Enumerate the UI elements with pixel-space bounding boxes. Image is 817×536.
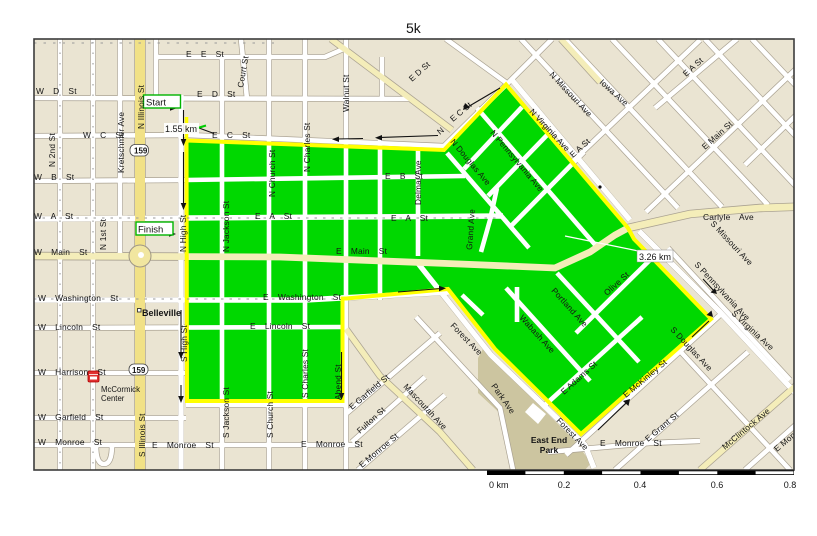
svg-text:W Main St: W Main St bbox=[34, 247, 88, 257]
svg-text:0 km: 0 km bbox=[489, 480, 509, 490]
svg-text:Start: Start bbox=[146, 98, 166, 109]
svg-text:McCormick: McCormick bbox=[101, 385, 140, 394]
svg-text:Abend St: Abend St bbox=[333, 364, 343, 400]
svg-text:Delmar Ave: Delmar Ave bbox=[413, 160, 423, 205]
svg-text:E A St: E A St bbox=[255, 211, 292, 221]
svg-text:1.55 km: 1.55 km bbox=[165, 124, 197, 134]
svg-text:W B St: W B St bbox=[34, 172, 75, 182]
svg-text:W Washington St: W Washington St bbox=[38, 293, 119, 303]
svg-text:159: 159 bbox=[132, 366, 146, 375]
svg-text:W A St: W A St bbox=[34, 211, 74, 221]
svg-text:0.6: 0.6 bbox=[711, 480, 724, 490]
svg-text:E Lincoln St: E Lincoln St bbox=[250, 321, 311, 331]
svg-text:E D St: E D St bbox=[197, 89, 236, 99]
svg-text:S Jackson St: S Jackson St bbox=[221, 387, 231, 438]
svg-text:N 1st St: N 1st St bbox=[98, 218, 108, 250]
svg-text:W Lincoln St: W Lincoln St bbox=[38, 322, 101, 332]
svg-text:N Church St: N Church St bbox=[267, 149, 277, 197]
svg-text:N Charles St: N Charles St bbox=[302, 122, 312, 172]
svg-text:E Washington St: E Washington St bbox=[263, 292, 342, 302]
svg-text:0.2: 0.2 bbox=[558, 480, 571, 490]
svg-text:E Main St: E Main St bbox=[336, 246, 388, 256]
svg-text:Walnut St: Walnut St bbox=[341, 74, 351, 112]
svg-text:S Charles St: S Charles St bbox=[300, 349, 310, 398]
svg-text:W D St: W D St bbox=[36, 86, 77, 96]
svg-text:Kretschmer Ave: Kretschmer Ave bbox=[116, 112, 126, 173]
svg-text:Center: Center bbox=[101, 394, 125, 403]
svg-text:E Monroe St: E Monroe St bbox=[152, 440, 214, 450]
svg-text:E C St: E C St bbox=[212, 130, 251, 140]
svg-text:W Harrison St: W Harrison St bbox=[38, 367, 106, 377]
svg-text:W Garfield St: W Garfield St bbox=[38, 412, 104, 422]
svg-text:3.26 km: 3.26 km bbox=[639, 252, 671, 262]
svg-text:Finish: Finish bbox=[138, 225, 163, 236]
svg-text:S High St: S High St bbox=[179, 325, 189, 362]
svg-text:S Church St: S Church St bbox=[265, 391, 275, 438]
svg-text:W Monroe St: W Monroe St bbox=[38, 437, 103, 447]
svg-text:0.4: 0.4 bbox=[634, 480, 647, 490]
svg-text:E E St: E E St bbox=[186, 49, 224, 59]
svg-text:N High St: N High St bbox=[178, 214, 188, 252]
svg-text:N Illinois St: N Illinois St bbox=[136, 84, 146, 129]
svg-text:159: 159 bbox=[134, 147, 148, 156]
svg-text:0.8: 0.8 bbox=[784, 480, 797, 490]
svg-text:Park: Park bbox=[540, 445, 559, 455]
svg-text:5k: 5k bbox=[406, 20, 422, 36]
svg-text:N 2nd St: N 2nd St bbox=[47, 133, 57, 167]
svg-text:East End: East End bbox=[531, 435, 567, 445]
svg-text:E A St: E A St bbox=[391, 213, 428, 223]
svg-text:Carlyle Ave: Carlyle Ave bbox=[703, 212, 754, 222]
svg-text:Belleville: Belleville bbox=[142, 308, 181, 318]
svg-text:E Monroe St: E Monroe St bbox=[301, 439, 363, 449]
svg-text:N Jackson St: N Jackson St bbox=[221, 200, 231, 252]
svg-text:S Illinois St: S Illinois St bbox=[137, 413, 147, 457]
